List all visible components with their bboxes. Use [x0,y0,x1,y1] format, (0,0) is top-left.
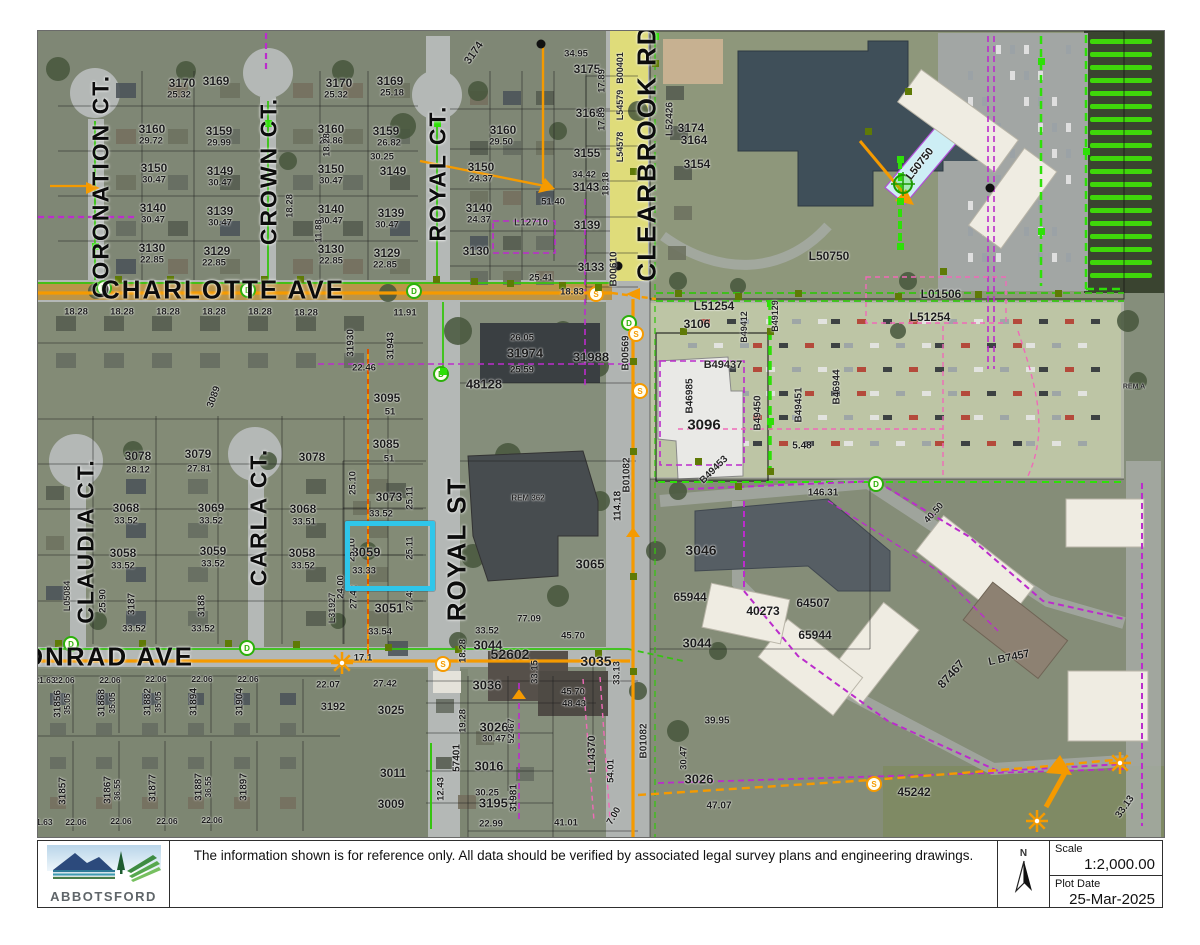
svg-text:D: D [873,480,879,489]
svg-text:D: D [101,284,107,293]
device-symbol-d: D [869,477,883,491]
orange-star-symbol [1109,752,1131,774]
svg-text:S: S [440,660,446,669]
svg-text:S: S [871,780,877,789]
north-arrow: N [998,841,1050,907]
svg-text:D: D [245,286,251,295]
device-symbol-d: D [97,281,111,295]
abbotsford-logo-graphic [45,845,163,887]
map-plot-page: DDDDDDDDSSSSS CORONATION CT.CROWN CT.ROY… [0,0,1200,945]
disclaimer-text: The information shown is for reference o… [194,848,973,863]
svg-text:D: D [626,319,632,328]
svg-text:D: D [244,644,250,653]
map-viewport[interactable]: DDDDDDDDSSSSS CORONATION CT.CROWN CT.ROY… [37,30,1165,838]
svg-text:S: S [637,387,643,396]
north-arrow-icon [1012,859,1036,895]
aerial-map-graphic: DDDDDDDDSSSSS [38,31,1164,837]
north-label: N [1020,849,1027,859]
device-symbol-d: D [407,284,421,298]
device-symbol-d: D [241,283,255,297]
svg-text:S: S [593,290,599,299]
device-symbol-d: D [64,637,78,651]
orange-star-symbol [331,652,353,674]
selected-parcel-highlight [345,521,435,591]
orange-star-symbol [1026,810,1048,832]
disclaimer-cell: The information shown is for reference o… [170,841,998,907]
service-symbol-s: S [436,657,450,671]
service-symbol-s: S [629,327,643,341]
scale-value: 1:2,000.00 [1055,856,1157,873]
plot-date-label: Plot Date [1055,878,1157,890]
scale-label: Scale [1055,843,1157,855]
svg-text:D: D [411,287,417,296]
svg-text:D: D [68,640,74,649]
title-block: ABBOTSFORD The information shown is for … [37,840,1163,908]
service-symbol-s: S [867,777,881,791]
logo-text: ABBOTSFORD [50,889,157,904]
scale-row: Scale 1:2,000.00 [1050,841,1162,876]
plot-date-row: Plot Date 25-Mar-2025 [1050,876,1162,910]
svg-text:S: S [633,330,639,339]
device-symbol-d: D [240,641,254,655]
service-symbol-s: S [633,384,647,398]
scale-date-block: Scale 1:2,000.00 Plot Date 25-Mar-2025 [1050,841,1162,907]
plot-date-value: 25-Mar-2025 [1055,891,1157,908]
abbotsford-logo: ABBOTSFORD [38,841,170,907]
